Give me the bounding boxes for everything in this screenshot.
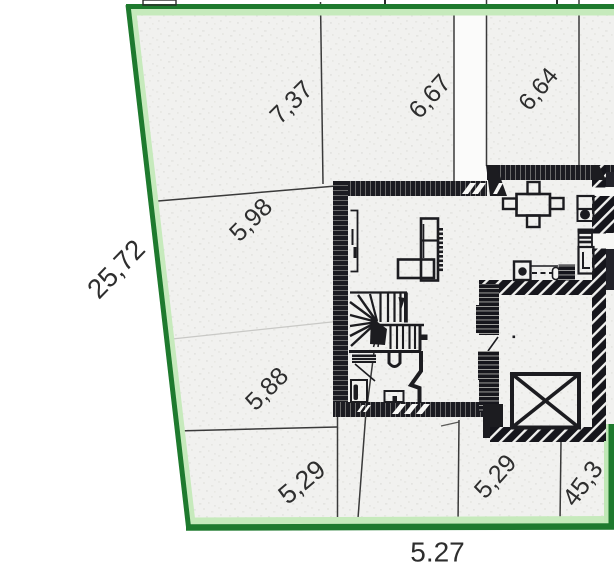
svg-text:5.27: 5.27 <box>410 536 465 567</box>
